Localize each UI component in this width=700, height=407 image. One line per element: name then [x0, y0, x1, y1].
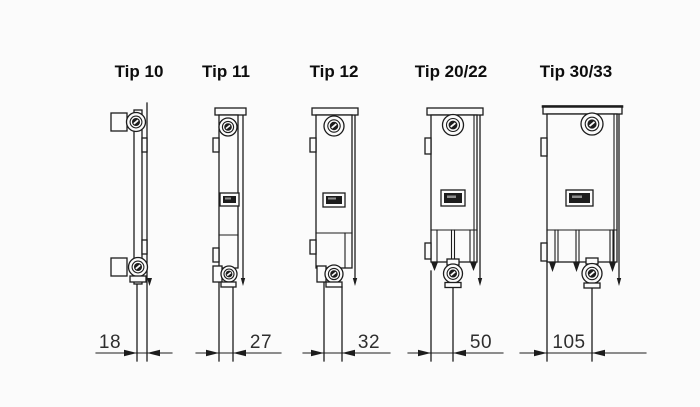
bracket-tab-upper	[541, 138, 547, 156]
radiator-tip-30-33	[541, 106, 622, 361]
top-valve-plug-icon	[581, 113, 603, 135]
bracket-tab-lower	[541, 243, 547, 261]
top-valve-plug-icon	[127, 113, 146, 132]
top-grille	[427, 108, 483, 115]
bracket-tab-lower	[310, 240, 316, 254]
dim-arrow-left-icon	[342, 350, 355, 357]
radiator-tip-10	[111, 103, 152, 361]
dim-arrow-right-icon	[311, 350, 324, 357]
top-valve-plug-icon	[324, 116, 344, 136]
bracket-tab-upper	[310, 138, 316, 152]
rating-plate	[441, 190, 465, 206]
bracket-tab-lower	[213, 248, 219, 262]
bottom-valve-plug-icon	[582, 264, 602, 284]
rating-plate	[566, 190, 593, 206]
panel-foot	[609, 262, 616, 272]
panel-foot	[431, 262, 438, 271]
top-grille	[312, 108, 358, 115]
dimension-tip-10: 18	[96, 332, 172, 356]
back-fin-tip	[478, 278, 482, 286]
back-fin-tip	[241, 278, 245, 286]
top-valve-plug-icon	[219, 118, 237, 136]
radiator-tip-11	[213, 108, 246, 361]
type-label-tip-12: Tip 12	[310, 62, 359, 81]
top-valve-plug-icon	[443, 115, 464, 136]
dim-arrow-left-icon	[453, 350, 466, 357]
panel-foot	[470, 262, 477, 271]
dimension-tip-12: 32	[303, 332, 390, 356]
dimension-value: 18	[99, 332, 121, 353]
radiator-tip-12	[310, 108, 358, 361]
dim-arrow-right-icon	[124, 350, 137, 357]
dim-arrow-right-icon	[418, 350, 431, 357]
dimension-tip-20-22: 50	[408, 332, 503, 356]
type-label-tip-20-22: Tip 20/22	[415, 62, 487, 81]
dim-arrow-left-icon	[233, 350, 246, 357]
back-fin-tip	[147, 278, 152, 286]
dim-arrow-right-icon	[534, 350, 547, 357]
type-label-tip-10: Tip 10	[115, 62, 164, 81]
back-fin-tip	[617, 278, 621, 286]
bracket-tab-lower	[425, 243, 431, 259]
dimension-tip-30-33: 105	[520, 332, 646, 356]
dimension-value: 105	[552, 332, 585, 353]
rating-plate	[323, 193, 345, 207]
back-fin-tip	[353, 278, 357, 286]
bottom-valve-plug-icon	[325, 265, 343, 283]
bracket-tab-upper	[142, 138, 147, 152]
radiator-tip-20-22	[425, 108, 483, 361]
type-label-tip-30-33: Tip 30/33	[540, 62, 612, 81]
bracket-tab-upper	[425, 138, 431, 154]
radiator-types-diagram: Tip 10 Tip 11 Tip 12 Tip 20/22 Tip 30/33	[0, 0, 700, 407]
dim-arrow-left-icon	[592, 350, 605, 357]
bottom-valve-plug-icon	[129, 258, 148, 277]
top-grille	[215, 108, 246, 115]
dim-arrow-left-icon	[147, 350, 160, 357]
dim-arrow-right-icon	[206, 350, 219, 357]
bracket-tab-upper	[213, 138, 219, 152]
panel-foot	[573, 262, 580, 272]
panel-foot	[549, 262, 556, 272]
dimension-value: 32	[358, 332, 380, 353]
type-label-tip-11: Tip 11	[202, 62, 250, 81]
dimension-tip-11: 27	[196, 332, 281, 356]
bottom-valve-plug-icon	[221, 266, 237, 282]
bottom-valve-plug-icon	[444, 264, 463, 283]
dimension-value: 50	[470, 332, 492, 353]
bracket-tab-lower	[142, 240, 147, 254]
diagram-canvas: Tip 10 Tip 11 Tip 12 Tip 20/22 Tip 30/33	[0, 0, 700, 407]
dimension-value: 27	[250, 332, 272, 353]
rating-plate	[220, 193, 239, 206]
